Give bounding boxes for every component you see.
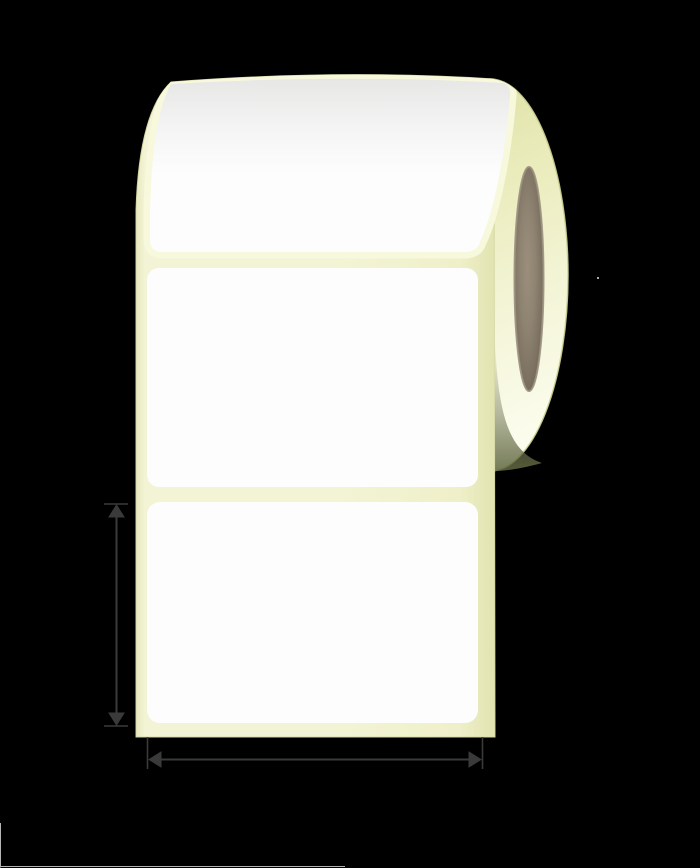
label-roll-illustration — [0, 0, 700, 868]
label-roll-product-image — [0, 0, 700, 868]
labels-group — [147, 79, 510, 723]
label-2 — [147, 268, 478, 487]
stray-pixel-artifact — [597, 277, 599, 279]
roll-core — [515, 167, 544, 391]
label-1-shading — [150, 79, 510, 252]
label-3 — [147, 502, 478, 723]
